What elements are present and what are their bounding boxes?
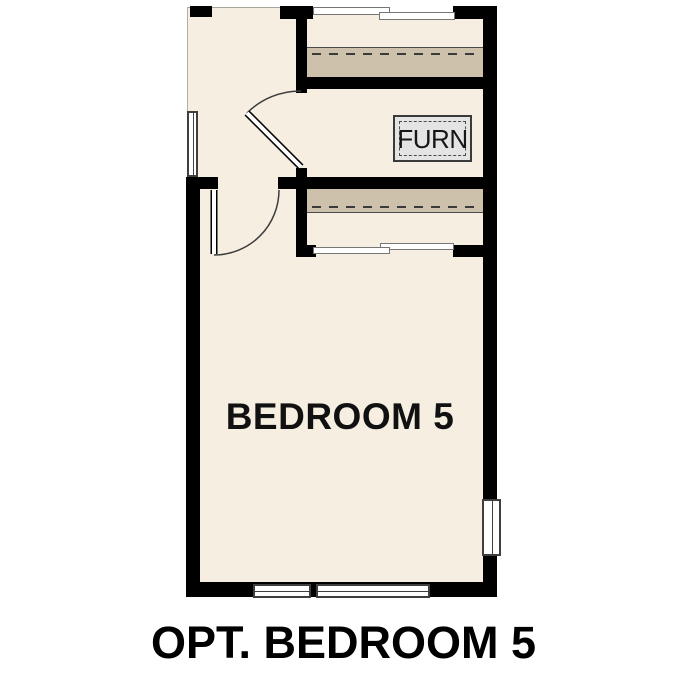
furnace-box: FURN [393, 115, 472, 162]
shelf-rod-dashed-line [312, 53, 478, 55]
window-mullion [492, 501, 493, 554]
room-label: BEDROOM 5 [170, 398, 510, 435]
window-bottom-2 [316, 584, 430, 598]
window-left [187, 111, 198, 177]
wall-closet-bottom-right [453, 245, 483, 257]
window-right [482, 499, 501, 556]
wall-vertical-a-lower [296, 168, 307, 257]
floor-plan-canvas: FURN BEDROOM 5 OPT. BEDROOM 5 [0, 0, 687, 687]
wall-branch-closet-furn [296, 77, 483, 89]
bedroom-floor [200, 15, 483, 582]
closet-shelf-bottom [307, 189, 483, 213]
bypass-door-closet-panel-2 [380, 243, 454, 250]
plan-caption: OPT. BEDROOM 5 [0, 620, 687, 665]
bypass-door-closet-panel-1 [313, 247, 390, 254]
wall-mid-horizontal [278, 177, 483, 189]
window-bottom-1 [253, 584, 311, 598]
wall-left [186, 177, 200, 597]
window-mullion [193, 113, 194, 175]
bypass-door-top-panel-2 [379, 12, 455, 20]
closet-shelf-top [307, 47, 483, 77]
window-mullion [318, 591, 428, 592]
wall-entry-left-of-door [186, 177, 218, 189]
furnace-label: FURN [397, 126, 467, 152]
wall-top-left-stub [190, 6, 212, 17]
window-mullion [255, 591, 309, 592]
shelf-rod-dashed-line [312, 206, 478, 208]
